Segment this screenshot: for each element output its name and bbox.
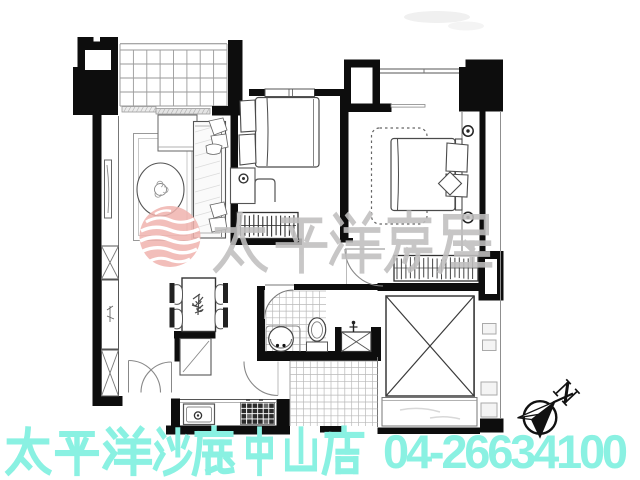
svg-text:04-26634100: 04-26634100 xyxy=(383,425,627,478)
